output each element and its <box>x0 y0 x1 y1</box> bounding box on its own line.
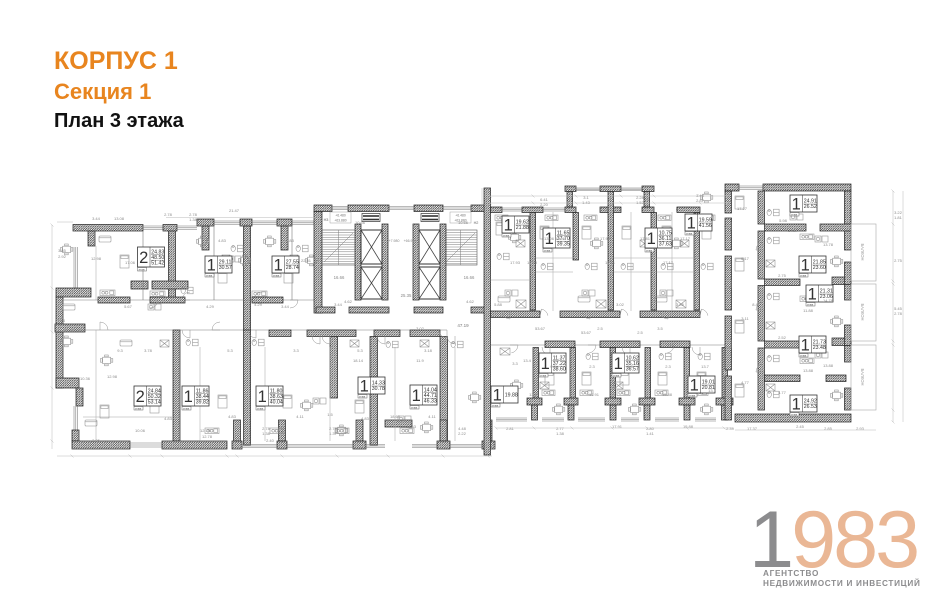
svg-text:2.75: 2.75 <box>894 258 903 263</box>
svg-text:19.88: 19.88 <box>505 392 518 398</box>
svg-text:3.3: 3.3 <box>293 348 299 353</box>
svg-text:4.29: 4.29 <box>254 302 263 307</box>
svg-text:1: 1 <box>274 257 283 275</box>
svg-text:4.83: 4.83 <box>228 414 237 419</box>
svg-text:4.83: 4.83 <box>164 416 173 421</box>
svg-text:5.3: 5.3 <box>357 348 363 353</box>
svg-text:11.9: 11.9 <box>416 358 424 363</box>
svg-text:13.4: 13.4 <box>523 358 532 363</box>
svg-text:1: 1 <box>690 377 699 395</box>
svg-text:13.88: 13.88 <box>823 363 834 368</box>
svg-text:23.48: 23.48 <box>813 345 826 351</box>
svg-text:2.5: 2.5 <box>637 330 643 335</box>
svg-text:13.88: 13.88 <box>803 368 814 373</box>
svg-text:12.78: 12.78 <box>200 428 211 433</box>
svg-text:4.29: 4.29 <box>206 304 215 309</box>
svg-text:этаж: этаж <box>411 405 417 409</box>
svg-text:БАЛКОН: БАЛКОН <box>860 369 865 386</box>
svg-text:этаж: этаж <box>492 403 498 407</box>
svg-text:+66.980: +66.980 <box>404 239 417 243</box>
svg-text:этаж: этаж <box>686 231 692 235</box>
svg-text:4.83: 4.83 <box>361 416 370 421</box>
svg-text:13.7: 13.7 <box>701 364 710 369</box>
svg-text:17.27: 17.27 <box>737 206 748 211</box>
svg-text:1.38: 1.38 <box>556 431 565 436</box>
svg-text:12.98: 12.98 <box>107 374 118 379</box>
svg-text:1: 1 <box>801 257 810 275</box>
svg-text:1.5: 1.5 <box>327 412 333 417</box>
svg-text:1: 1 <box>412 387 421 405</box>
svg-text:1.41: 1.41 <box>646 431 655 436</box>
svg-text:30.57: 30.57 <box>219 265 232 271</box>
svg-text:2.81: 2.81 <box>506 426 515 431</box>
svg-text:12.78: 12.78 <box>202 434 213 439</box>
svg-text:1: 1 <box>792 196 801 214</box>
svg-text:13.06: 13.06 <box>555 236 566 241</box>
svg-text:2.3: 2.3 <box>665 364 671 369</box>
svg-text:2.39: 2.39 <box>726 426 735 431</box>
svg-text:9.3: 9.3 <box>117 348 123 353</box>
svg-text:17.17: 17.17 <box>663 260 674 265</box>
svg-text:51.42: 51.42 <box>151 260 164 266</box>
svg-text:1: 1 <box>493 387 502 405</box>
svg-text:13.78: 13.78 <box>823 242 834 247</box>
svg-text:18.63: 18.63 <box>390 414 401 419</box>
svg-text:Н3: Н3 <box>324 218 329 222</box>
svg-text:9.3: 9.3 <box>550 364 556 369</box>
svg-text:26.53: 26.53 <box>804 404 817 410</box>
svg-text:1: 1 <box>614 355 623 373</box>
svg-text:4.83: 4.83 <box>286 238 295 243</box>
svg-text:1: 1 <box>258 388 267 406</box>
svg-text:2.52: 2.52 <box>778 335 787 340</box>
svg-text:4.62: 4.62 <box>466 299 475 304</box>
svg-text:3.18: 3.18 <box>424 348 433 353</box>
svg-text:23.60: 23.60 <box>813 265 826 271</box>
svg-text:5.67: 5.67 <box>124 304 133 309</box>
svg-text:18.63: 18.63 <box>406 424 417 429</box>
svg-text:17.91: 17.91 <box>589 392 600 397</box>
svg-text:2.78: 2.78 <box>164 212 173 217</box>
svg-text:БАЛКОН: БАЛКОН <box>860 244 865 261</box>
svg-text:этаж: этаж <box>689 393 695 397</box>
svg-text:этаж: этаж <box>807 302 813 306</box>
svg-text:3.02: 3.02 <box>616 302 625 307</box>
svg-text:этаж: этаж <box>613 373 619 377</box>
svg-text:этаж: этаж <box>800 273 806 277</box>
svg-text:2.3: 2.3 <box>589 364 595 369</box>
svg-text:1: 1 <box>792 396 801 414</box>
svg-text:этаж: этаж <box>206 273 212 277</box>
svg-text:14.78: 14.78 <box>823 298 834 303</box>
svg-text:39.35: 39.35 <box>557 241 570 247</box>
svg-text:5.3: 5.3 <box>227 348 233 353</box>
svg-text:1: 1 <box>808 286 817 304</box>
svg-text:11.88: 11.88 <box>803 308 813 313</box>
svg-text:6.17: 6.17 <box>741 256 750 261</box>
svg-text:3.44: 3.44 <box>92 216 101 221</box>
svg-text:этаж: этаж <box>273 273 279 277</box>
svg-text:2.5: 2.5 <box>597 326 603 331</box>
svg-text:3.85: 3.85 <box>58 248 67 253</box>
svg-text:10.36: 10.36 <box>80 376 91 381</box>
svg-text:17.81: 17.81 <box>605 260 616 265</box>
svg-text:5.88: 5.88 <box>494 302 503 307</box>
svg-text:16.66: 16.66 <box>334 275 345 280</box>
svg-text:1.52: 1.52 <box>636 200 645 205</box>
svg-text:4.11: 4.11 <box>428 414 436 419</box>
svg-text:10.66: 10.66 <box>458 220 469 225</box>
svg-text:17.93: 17.93 <box>527 260 538 265</box>
svg-text:3.44: 3.44 <box>334 302 343 307</box>
svg-text:10.66: 10.66 <box>355 220 366 225</box>
svg-text:4.77: 4.77 <box>741 380 750 385</box>
svg-text:2.40: 2.40 <box>266 438 275 443</box>
svg-text:39.82: 39.82 <box>196 399 209 405</box>
svg-text:3.02: 3.02 <box>416 326 425 331</box>
svg-text:1.37: 1.37 <box>329 431 338 436</box>
svg-text:41.56: 41.56 <box>699 223 712 229</box>
svg-text:17.17: 17.17 <box>680 236 691 241</box>
svg-text:+6.480: +6.480 <box>455 214 466 218</box>
svg-text:2.78: 2.78 <box>894 311 903 316</box>
svg-text:13.08: 13.08 <box>114 216 125 221</box>
svg-text:17.27: 17.27 <box>788 228 799 233</box>
svg-text:этаж: этаж <box>139 267 145 271</box>
svg-text:53.67: 53.67 <box>535 326 546 331</box>
svg-text:4.83: 4.83 <box>218 238 227 243</box>
svg-text:+63.880: +63.880 <box>334 219 346 223</box>
svg-text:1: 1 <box>360 378 369 396</box>
svg-text:4.11: 4.11 <box>296 414 304 419</box>
svg-text:3.85: 3.85 <box>676 302 685 307</box>
svg-text:12.98: 12.98 <box>91 256 102 261</box>
svg-text:21.88: 21.88 <box>516 225 529 231</box>
svg-text:этаж: этаж <box>540 373 546 377</box>
svg-text:13.06: 13.06 <box>544 236 555 241</box>
svg-text:26.52: 26.52 <box>804 204 817 210</box>
svg-text:10.06: 10.06 <box>135 428 146 433</box>
svg-text:БАЛКОН: БАЛКОН <box>860 304 865 321</box>
svg-text:37.63: 37.63 <box>659 241 672 247</box>
svg-text:3.44: 3.44 <box>281 304 290 309</box>
svg-text:13.7: 13.7 <box>708 388 717 393</box>
svg-text:+7.980: +7.980 <box>389 239 400 243</box>
svg-text:28.74: 28.74 <box>286 265 299 271</box>
svg-text:3.5: 3.5 <box>657 326 663 331</box>
svg-text:этаж: этаж <box>800 353 806 357</box>
svg-text:2.22: 2.22 <box>458 431 467 436</box>
svg-text:8.4: 8.4 <box>752 302 758 307</box>
svg-text:17.93: 17.93 <box>510 260 521 265</box>
svg-text:17.06: 17.06 <box>125 260 136 265</box>
svg-text:12.54: 12.54 <box>55 318 66 323</box>
svg-text:этаж: этаж <box>791 412 797 416</box>
svg-text:этаж: этаж <box>544 248 550 252</box>
svg-text:+6.480: +6.480 <box>335 214 346 218</box>
svg-text:1: 1 <box>184 388 193 406</box>
svg-text:этаж: этаж <box>359 394 365 398</box>
svg-text:этаж: этаж <box>503 233 509 237</box>
svg-text:3.85: 3.85 <box>92 438 101 443</box>
svg-text:17.81: 17.81 <box>640 236 651 241</box>
svg-text:1: 1 <box>504 217 513 235</box>
svg-text:22.51: 22.51 <box>301 258 312 263</box>
svg-text:40.04: 40.04 <box>270 399 283 405</box>
svg-text:4.77: 4.77 <box>778 390 787 395</box>
svg-text:30.78: 30.78 <box>372 386 385 392</box>
svg-text:1: 1 <box>207 257 216 275</box>
svg-text:2: 2 <box>139 249 148 267</box>
svg-text:53.14: 53.14 <box>148 399 161 405</box>
svg-text:46.33: 46.33 <box>424 398 437 404</box>
svg-text:47.19: 47.19 <box>457 323 469 328</box>
svg-text:1.43: 1.43 <box>582 200 591 205</box>
svg-text:этаж: этаж <box>183 406 189 410</box>
svg-text:этаж: этаж <box>791 212 797 216</box>
svg-text:3.3: 3.3 <box>512 361 518 366</box>
svg-text:13.4: 13.4 <box>529 392 538 397</box>
svg-text:1: 1 <box>801 337 810 355</box>
svg-text:18.14: 18.14 <box>353 358 364 363</box>
svg-text:1.81: 1.81 <box>894 215 903 220</box>
svg-text:2.87: 2.87 <box>696 198 705 203</box>
svg-text:25.35: 25.35 <box>401 293 412 298</box>
svg-text:3.3: 3.3 <box>627 364 633 369</box>
svg-text:этаж: этаж <box>135 406 141 410</box>
svg-text:3.11: 3.11 <box>741 316 749 321</box>
svg-text:2.92: 2.92 <box>58 254 67 259</box>
svg-text:Н2: Н2 <box>474 221 479 225</box>
svg-text:15.88: 15.88 <box>662 392 673 397</box>
svg-text:21.47: 21.47 <box>229 208 240 213</box>
svg-text:2.45: 2.45 <box>796 424 805 429</box>
svg-text:53.67: 53.67 <box>581 330 592 335</box>
svg-text:4.62: 4.62 <box>344 299 353 304</box>
svg-text:5.98: 5.98 <box>779 218 788 223</box>
svg-text:этаж: этаж <box>646 248 652 252</box>
svg-text:3.78: 3.78 <box>144 348 153 353</box>
svg-text:2: 2 <box>136 388 145 406</box>
svg-text:1: 1 <box>687 215 696 233</box>
svg-text:этаж: этаж <box>257 406 263 410</box>
svg-text:17.93: 17.93 <box>600 236 611 241</box>
svg-text:16.66: 16.66 <box>464 275 475 280</box>
svg-text:1.38: 1.38 <box>262 431 271 436</box>
svg-text:2.75: 2.75 <box>778 273 787 278</box>
svg-text:1: 1 <box>541 355 550 373</box>
